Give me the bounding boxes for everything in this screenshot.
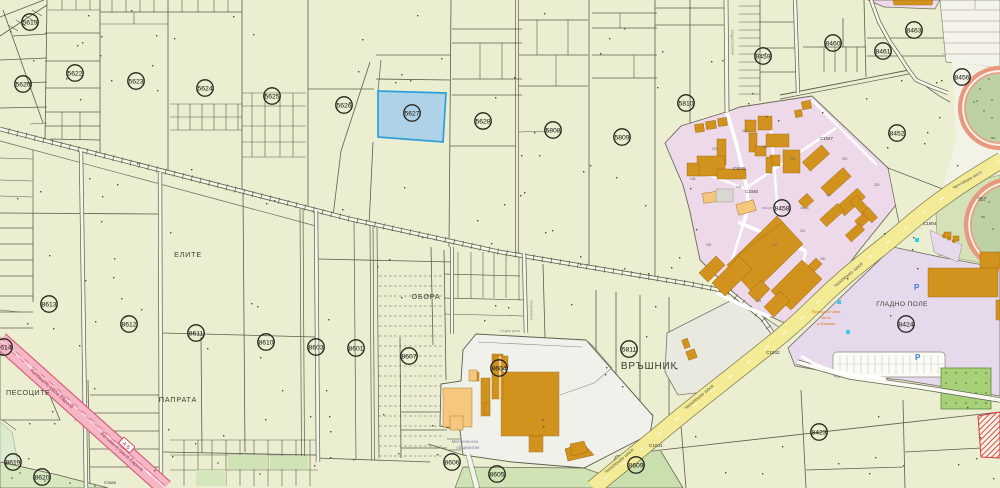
svg-text:5624: 5624 [197,85,212,92]
svg-text:общежитие: общежитие [456,445,480,450]
svg-text:8612: 8612 [121,321,136,328]
svg-text:5623: 5623 [128,78,143,85]
svg-text:5622: 5622 [67,70,82,77]
svg-text:306: 306 [742,129,748,133]
svg-text:8609: 8609 [628,462,643,469]
svg-text:Р: Р [914,283,920,292]
svg-text:8456: 8456 [954,74,969,81]
svg-text:5626: 5626 [336,102,351,109]
svg-text:С1047: С1047 [820,136,833,141]
svg-text:8610: 8610 [258,339,273,346]
svg-text:завод: завод [800,206,809,210]
svg-text:142: 142 [736,185,742,189]
svg-text:310: 310 [800,229,806,233]
svg-text:8424: 8424 [898,321,913,328]
svg-text:8603: 8603 [308,344,323,351]
svg-text:8606: 8606 [444,459,459,466]
svg-text:Челопешка: Челопешка [529,300,534,321]
svg-text:Р: Р [915,353,921,362]
svg-text:Стара река: Стара река [500,329,521,333]
svg-text:8458: 8458 [774,205,789,212]
svg-text:8459: 8459 [755,53,770,60]
svg-text:8604: 8604 [491,365,506,372]
svg-text:8611: 8611 [189,330,204,337]
svg-text:©1985: ©1985 [104,480,117,485]
svg-text:8620: 8620 [34,474,49,481]
svg-text:8613: 8613 [41,301,56,308]
svg-text:ВРЪШНИК: ВРЪШНИК [621,361,677,372]
svg-text:8460: 8460 [825,40,840,47]
svg-text:С1045: С1045 [733,166,746,171]
svg-text:ПЕСОЦИТЕ: ПЕСОЦИТЕ [6,388,50,397]
svg-text:312: 312 [826,193,832,197]
svg-text:5619: 5619 [22,19,37,26]
svg-text:и Жасмин: и Жасмин [817,321,836,326]
svg-text:5620: 5620 [15,81,30,88]
svg-text:8463: 8463 [906,27,921,34]
svg-text:С1046: С1046 [745,189,758,194]
svg-text:5809: 5809 [614,134,629,141]
svg-text:С1041: С1041 [649,443,663,448]
svg-text:хотел: хотел [821,315,832,320]
svg-text:328: 328 [874,183,880,187]
svg-text:208: 208 [756,299,762,303]
svg-text:5625: 5625 [264,93,279,100]
svg-text:8452: 8452 [889,130,904,137]
svg-text:206: 206 [706,243,712,247]
svg-text:Метличенско: Метличенско [452,439,479,444]
svg-text:318: 318 [790,157,796,161]
svg-text:8619: 8619 [5,459,20,466]
svg-text:8461: 8461 [875,48,890,55]
svg-text:8605: 8605 [489,471,504,478]
svg-text:Принцеса Чина: Принцеса Чина [812,309,841,314]
svg-text:8607: 8607 [401,353,416,360]
svg-text:8614: 8614 [0,344,12,351]
svg-text:5628: 5628 [475,118,490,125]
svg-text:214: 214 [772,243,778,247]
svg-text:8601: 8601 [348,345,363,352]
svg-text:ПАПРАТА: ПАПРАТА [159,395,197,404]
svg-text:5810: 5810 [678,100,693,107]
svg-text:5811: 5811 [622,346,637,353]
svg-text:5808: 5808 [545,127,560,134]
svg-text:маш.рем.: маш.рем. [762,206,776,210]
svg-text:957: 957 [978,197,987,203]
svg-text:108: 108 [690,177,696,181]
svg-text:320: 320 [842,157,848,161]
svg-text:8423: 8423 [811,429,826,436]
svg-text:ГЛАДНО ПОЛЕ: ГЛАДНО ПОЛЕ [876,301,928,308]
svg-text:ЕЛИТЕ: ЕЛИТЕ [174,250,202,259]
svg-text:225: 225 [712,147,718,151]
svg-text:304: 304 [762,145,768,149]
svg-text:С1904: С1904 [923,221,937,226]
svg-text:230: 230 [820,257,826,261]
svg-text:С1042: С1042 [766,350,780,355]
svg-text:ОБОРА: ОБОРА [412,292,441,301]
svg-text:5627: 5627 [404,110,419,117]
